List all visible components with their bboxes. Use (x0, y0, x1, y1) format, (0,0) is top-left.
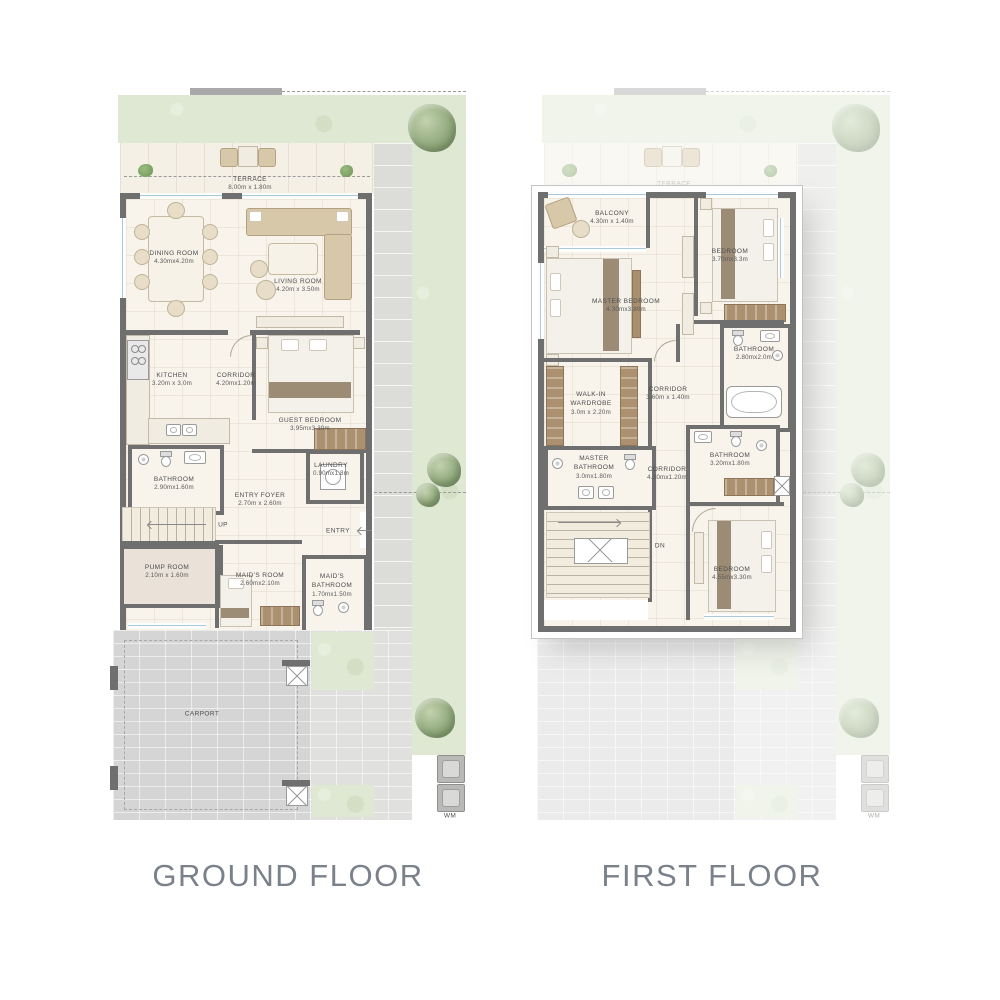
stairs-up (122, 507, 216, 543)
ground-floor-plan: TERRACE 8.00m x 1.80m DINING ROOM 4.30mx… (110, 88, 466, 822)
stove-icon (127, 340, 149, 380)
wall (646, 198, 650, 248)
chair-icon (167, 202, 185, 219)
room-label-entry-foyer: ENTRY FOYER 2.70m x 2.60m (235, 491, 285, 509)
meter-box-icon (437, 755, 465, 783)
sink-icon (760, 330, 780, 342)
sink-icon (578, 486, 594, 499)
window (778, 218, 784, 278)
room-label-corridor: CORRIDOR 4.20mx1.20m (216, 371, 256, 389)
plot-boundary-line (282, 91, 466, 92)
wall (676, 324, 680, 362)
gate-bar (190, 88, 282, 95)
wall (694, 198, 698, 316)
closet-icon (682, 293, 694, 335)
toilet-icon (732, 330, 742, 345)
coffee-table-icon (268, 243, 318, 275)
balcony-railing (548, 192, 646, 198)
bathtub-icon (726, 386, 782, 418)
window (544, 246, 646, 252)
garden-strip-top (118, 95, 412, 143)
first-floor-building-layer: BALCONY 4.30m x 1.40m BEDROOM 3.70mx3.3m… (534, 88, 890, 822)
stair-void-cross (574, 538, 626, 562)
closet-icon (682, 236, 694, 278)
window (140, 193, 222, 199)
stairs-down-label: DN (655, 543, 665, 550)
bush-icon (340, 165, 353, 177)
window (120, 218, 126, 298)
wall-stub (110, 766, 118, 790)
chair-icon (202, 249, 218, 265)
guest-bed-icon (268, 335, 354, 413)
wall (686, 502, 784, 506)
shower-icon (338, 602, 349, 613)
roof-ledge (544, 600, 648, 620)
tree-icon (427, 453, 461, 487)
carport-dashed-outline (124, 640, 298, 810)
pouf-icon (250, 260, 268, 278)
side-table-icon (572, 220, 590, 238)
tree-icon (408, 104, 456, 152)
room-label-corridor-b: CORRIDOR 4.30mx1.20m (646, 465, 688, 483)
shower-icon (552, 458, 563, 469)
room-label-terrace: TERRACE 8.00m x 1.80m (228, 175, 272, 193)
kitchen-sink-icon (166, 424, 181, 436)
room-label-dining: DINING ROOM 4.30mx4.20m (149, 249, 198, 267)
window (242, 193, 358, 199)
wardrobe-icon (620, 366, 638, 446)
room-label-pump-room: PUMP ROOM 2.10m x 1.60m (145, 563, 189, 581)
entry-label: ENTRY (326, 528, 350, 535)
wall (215, 540, 302, 544)
chair-icon (134, 249, 150, 265)
nightstand-icon (353, 337, 365, 349)
stairs-up-label: UP (218, 522, 228, 529)
chair-icon (202, 274, 218, 290)
walkway (374, 143, 412, 630)
room-label-bathroom-1: BATHROOM 2.80mx2.0m (730, 345, 778, 363)
room-label-laundry: LAUNDRY 0.90mx1.8m (313, 461, 349, 479)
tree-icon (415, 698, 455, 738)
bush-icon (138, 164, 153, 177)
pouf-icon (256, 280, 276, 300)
wall-stub (110, 666, 118, 690)
sofa-pillow-icon (249, 211, 262, 222)
garden-patch (312, 632, 374, 690)
chair-icon (134, 274, 150, 290)
stairs-direction-arrow (148, 524, 206, 525)
room-label-maids-bathroom: MAID'S BATHROOM 1.70mx1.50m (306, 572, 358, 600)
room-label-kitchen: KITCHEN 3.20m x 3.0m (152, 371, 192, 389)
wardrobe-icon (260, 606, 300, 626)
room-label-walk-in-wardrobe: WALK-IN WARDROBE 3.0m x 2.20m (562, 390, 620, 418)
wall (686, 506, 690, 620)
window (706, 192, 778, 198)
outdoor-chair-icon (258, 148, 276, 167)
shower-icon (756, 440, 767, 451)
water-meter-label: WM (444, 813, 456, 820)
nightstand-icon (700, 302, 712, 314)
entry-arrow (358, 530, 372, 531)
sofa-icon (324, 234, 352, 300)
floorplan-brochure: TERRACE 8.00m x 1.80m DINING ROOM 4.30mx… (0, 0, 1000, 1000)
room-label-carport: CARPORT (185, 709, 219, 718)
tree-icon (416, 483, 440, 507)
em-box (286, 786, 308, 806)
first-floor-plan: TERRACE WM (534, 88, 890, 822)
room-label-master-bathroom: MASTER BATHROOM 3.0mx1.80m (567, 454, 621, 482)
wardrobe-icon (724, 478, 774, 496)
sink-icon (694, 431, 712, 443)
chair-icon (167, 300, 185, 317)
outdoor-table-icon (238, 146, 258, 167)
tv-console-icon (256, 316, 344, 328)
window (704, 614, 774, 620)
chair-icon (134, 224, 150, 240)
room-label-living: LIVING ROOM 4.20m x 3.50m (274, 277, 322, 295)
toilet-icon (160, 451, 170, 466)
stairs-direction-arrow (558, 522, 620, 523)
window (538, 263, 544, 339)
closet-icon (694, 532, 704, 584)
nightstand-icon (546, 246, 559, 258)
shaft-box (774, 476, 790, 496)
room-label-bathroom-2: BATHROOM 3.20mx1.80m (706, 451, 754, 469)
room-label-bedroom-2: BEDROOM 3.70mx3.3m (712, 247, 748, 265)
toilet-icon (312, 600, 322, 615)
wall (544, 358, 652, 362)
shower-icon (138, 454, 149, 465)
garden-strip-right (412, 95, 466, 755)
garden-patch (312, 785, 374, 817)
sink-icon (598, 486, 614, 499)
toilet-icon (624, 454, 634, 469)
room-label-maids-room: MAID'S ROOM 2.60mx2.10m (236, 571, 284, 589)
room-label-bedroom-3: BEDROOM 4.55mx3.30m (712, 565, 752, 583)
sofa-pillow-icon (336, 211, 349, 222)
room-label-master-bedroom: MASTER BEDROOM 4.30mx3.80m (588, 297, 664, 315)
nightstand-icon (256, 337, 268, 349)
chair-icon (202, 224, 218, 240)
wall (215, 540, 219, 628)
meter-box-icon (437, 784, 465, 812)
room-label-corridor-a: CORRIDOR 3.60m x 1.40m (642, 385, 694, 403)
kitchen-sink-icon (182, 424, 197, 436)
mdb-box (286, 666, 308, 686)
first-floor-title: FIRST FLOOR (534, 858, 890, 894)
ground-floor-title: GROUND FLOOR (110, 858, 466, 894)
outdoor-chair-icon (220, 148, 238, 167)
room-label-bathroom: BATHROOM 2.90mx1.60m (154, 475, 194, 493)
window (128, 623, 206, 629)
room-label-guest-bedroom: GUEST BEDROOM 3.95mx3.30m (279, 416, 342, 434)
room-label-balcony: BALCONY 4.30m x 1.40m (590, 209, 634, 227)
nightstand-icon (700, 198, 712, 210)
toilet-icon (730, 431, 740, 446)
sink-icon (184, 451, 206, 464)
